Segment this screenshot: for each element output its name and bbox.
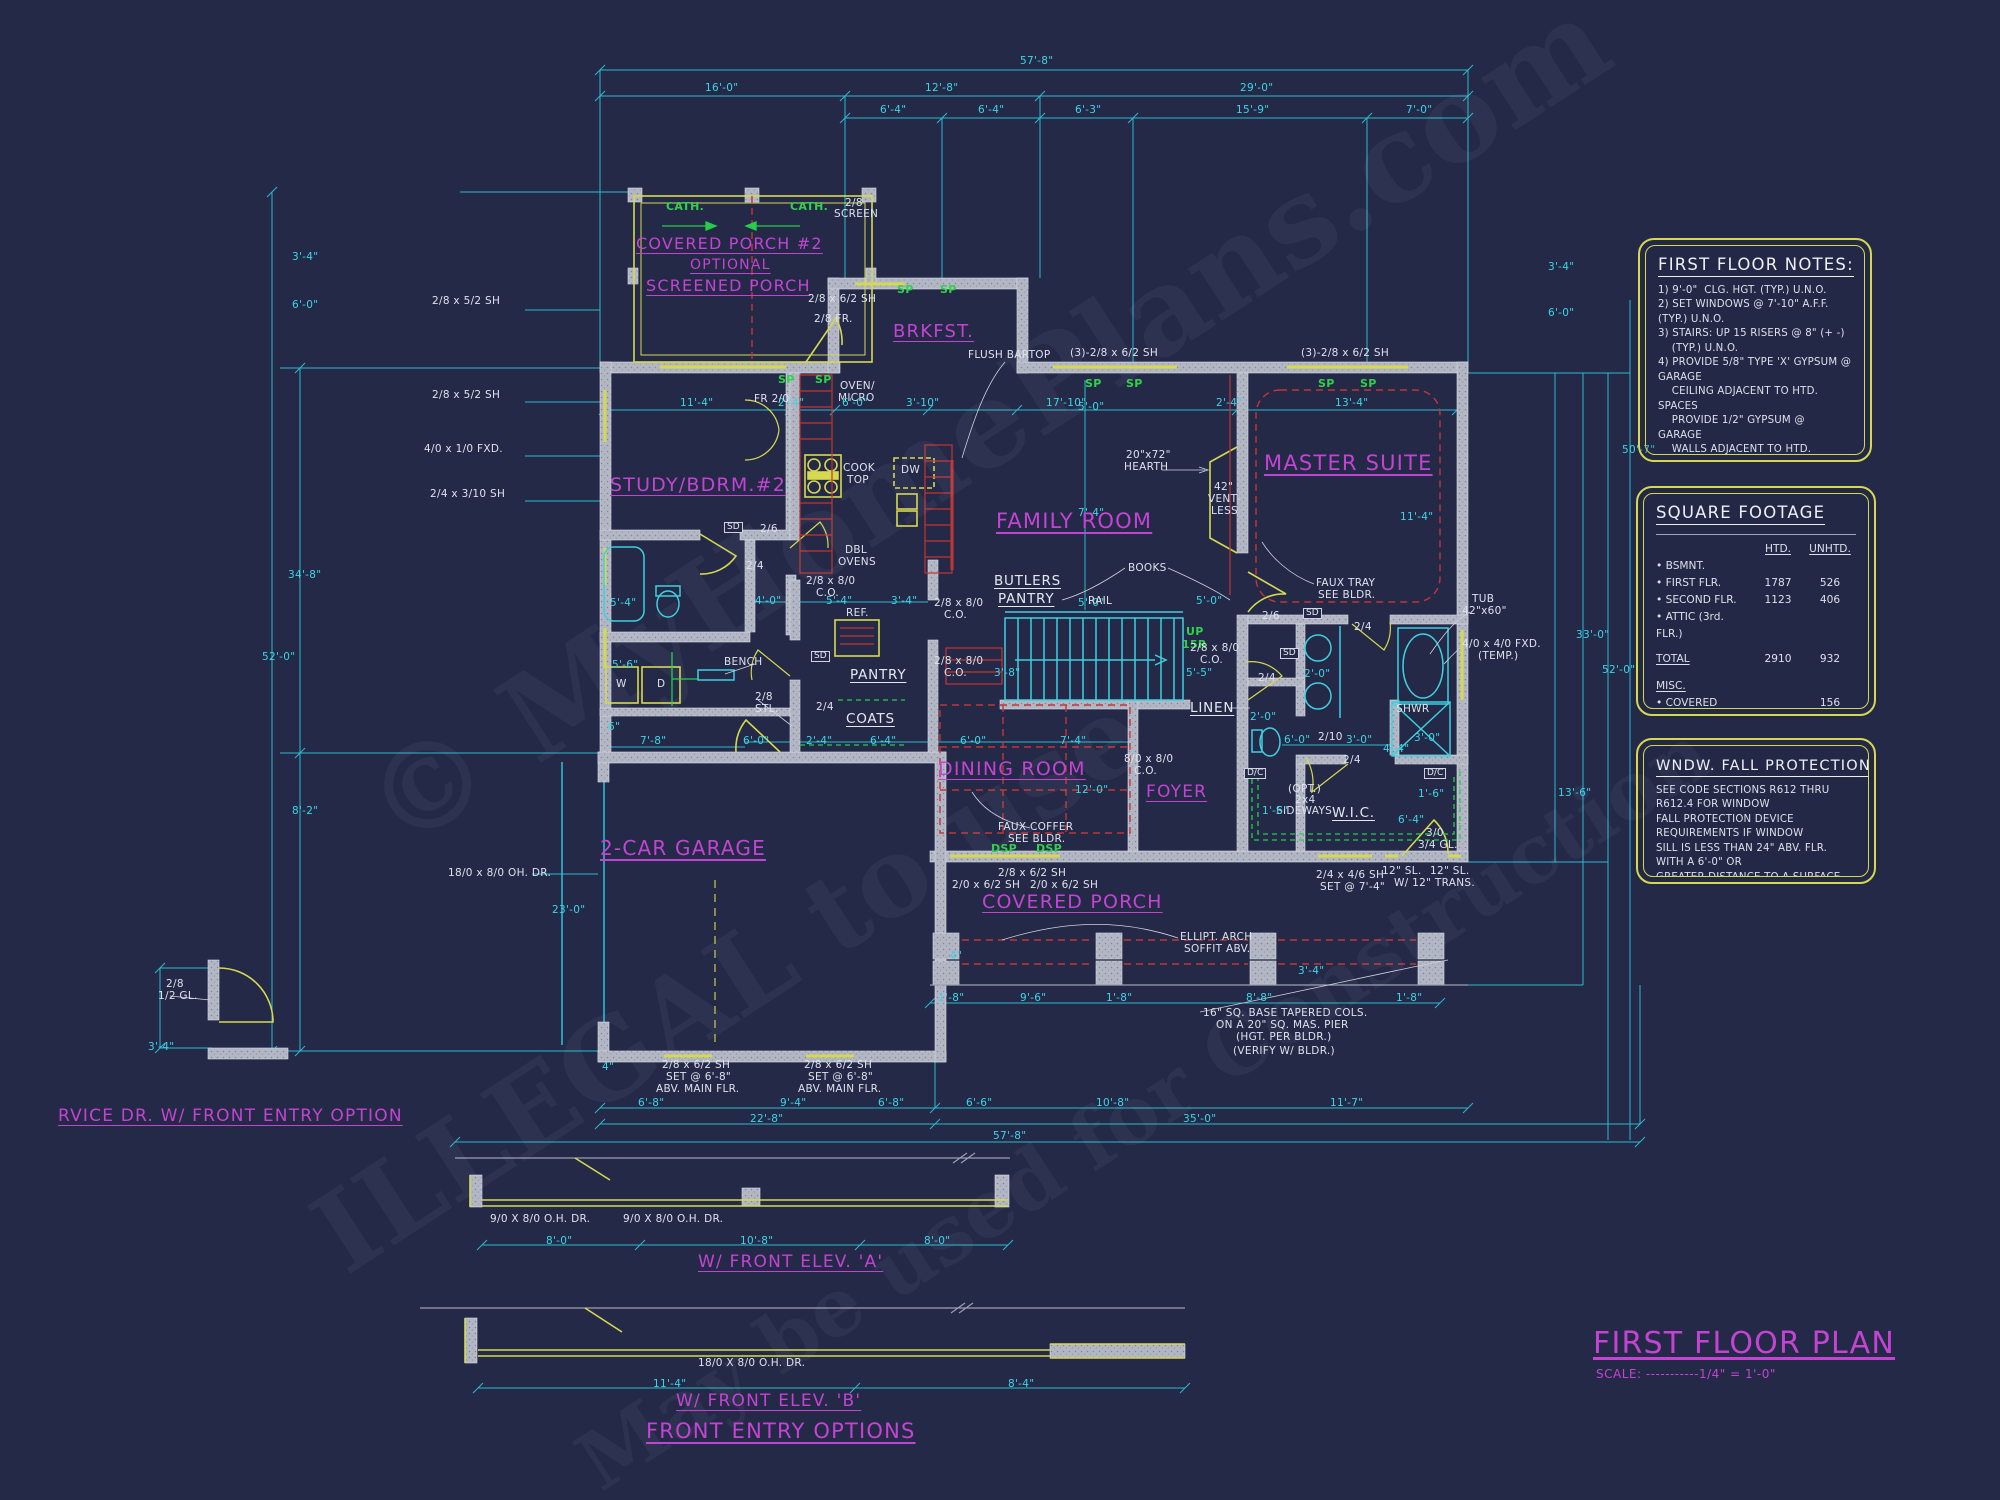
- plan-label-6-4: 6'-4": [880, 105, 906, 116]
- plan-label-soffit-abv: SOFFIT ABV.: [1184, 944, 1250, 955]
- note-line: 4) PROVIDE 5/8" TYPE 'X' GYPSUM @ GARAGE: [1658, 356, 1852, 385]
- plan-label-2-8-fr: 2/8 FR.: [814, 314, 853, 325]
- plan-label-6-3: 6'-3": [1075, 105, 1101, 116]
- plan-label-cath: CATH.: [790, 201, 828, 213]
- room-dining: DINING ROOM: [938, 760, 1086, 780]
- vanity-sink-icon: [1305, 635, 1331, 661]
- square-footage-box: SQUARE FOOTAGE HTD. UNHTD. • BSMNT.• FIR…: [1636, 486, 1876, 716]
- plan-label-screen: SCREEN: [834, 209, 878, 220]
- plan-label-2-4-x-4-6-sh: 2/4 x 4/6 SH: [1316, 870, 1384, 881]
- plan-label-optional: OPTIONAL: [690, 258, 771, 273]
- plan-label-abv-main-flr: ABV. MAIN FLR.: [798, 1084, 881, 1095]
- note-line: SILL IS LESS THAN 24" ABV. FLR. WITH A 6…: [1656, 842, 1856, 871]
- plan-label-ref: REF.: [846, 608, 869, 619]
- plan-label-w: W: [616, 679, 627, 690]
- plan-label-6-8: 6'-8": [638, 1098, 664, 1109]
- plan-label-2-10: 2/10: [1318, 732, 1343, 743]
- plan-label-sd: SD: [724, 522, 743, 533]
- vanity-sink-icon: [1305, 683, 1331, 709]
- plan-label-4: 4": [602, 1062, 614, 1073]
- plan-label-2-8: 2/8: [755, 692, 773, 703]
- plan-label-1-2-gl: 1/2 GL.: [158, 991, 198, 1002]
- note-line: 3) STAIRS: UP 15 RISERS @ 8" (+ -): [1658, 327, 1852, 341]
- plan-label-d-c: D/C: [1244, 768, 1266, 779]
- square-footage-total-row: TOTAL 2910 932: [1656, 651, 1856, 668]
- window-fall-notes-heading: WNDW. FALL PROTECTION NOTES:: [1656, 758, 1869, 777]
- plan-label-57-8: 57'-8": [1020, 56, 1053, 67]
- plan-label-42-x60: 42"x60": [1462, 606, 1507, 617]
- plan-label-18-0-x-8-0-o-h-dr: 18/0 X 8/0 O.H. DR.: [698, 1358, 805, 1369]
- plan-label-d-c: D/C: [1424, 768, 1446, 779]
- room-wic: W.I.C.: [1332, 806, 1375, 820]
- service-door-icon: [219, 968, 273, 1022]
- note-line: 1) 9'-0" CLG. HGT. (TYP.) U.N.O.: [1658, 284, 1852, 298]
- plan-label-2-8-x-6-2-sh: 2/8 x 6/2 SH: [804, 1060, 872, 1071]
- plan-label-9-6: 9'-6": [1020, 993, 1046, 1004]
- plan-label-set-6-8: SET @ 6'-8": [666, 1072, 731, 1083]
- plan-label-3-4: 3'-4": [891, 596, 917, 607]
- plan-label-2-8-x-6-2-sh: 2/8 x 6/2 SH: [998, 868, 1066, 879]
- plan-label-sp: SP: [1318, 378, 1335, 390]
- plan-label-16-0: 16'-0": [705, 83, 738, 94]
- plan-label-2-6: 2/6: [760, 524, 778, 535]
- plan-label-2-0: 2'-0": [1250, 712, 1276, 723]
- plan-label-6-0: 6'-0": [1548, 308, 1574, 319]
- plan-label-6-0: 6'-0": [743, 736, 769, 747]
- plan-label-3-10: 3'-10": [906, 398, 939, 409]
- plan-label-4-0: 4'-0": [755, 596, 781, 607]
- label-front-elev-b: W/ FRONT ELEV. 'B': [676, 1393, 861, 1411]
- plan-label-faux-coffer: FAUX COFFER: [998, 822, 1073, 833]
- plan-label-2-4: 2/4: [1343, 755, 1361, 766]
- plan-label-3-4: 3'-4": [1548, 262, 1574, 273]
- plan-label-7-8: 7'-8": [640, 736, 666, 747]
- plan-label-2-4: 2/4: [746, 561, 764, 572]
- square-footage-row: • SECOND FLR.1123406: [1656, 592, 1856, 609]
- plan-label-3-2-8-x-6-2-sh: (3)-2/8 x 6/2 SH: [1070, 348, 1158, 359]
- plan-label-12-0: 12'-0": [1075, 785, 1108, 796]
- plan-label-5-0: 5'-0": [1078, 402, 1104, 413]
- room-covered-porch: COVERED PORCH: [982, 893, 1163, 913]
- plan-label-2-8: 2/8: [166, 979, 184, 990]
- plan-label-sd: SD: [1280, 648, 1299, 659]
- plan-label-3-4: 3'-4": [1298, 966, 1324, 977]
- plan-label-42: 42": [1214, 482, 1233, 493]
- plan-label-sd: SD: [1303, 608, 1322, 619]
- plan-label-16-sq-base-tapered-cols: 16" SQ. BASE TAPERED COLS.: [1203, 1008, 1368, 1019]
- plan-label-13-6: 13'-6": [1558, 788, 1591, 799]
- blueprint-sheet: © MyHomePlans.comILLEGAL to useMay be us…: [0, 0, 2000, 1500]
- plan-label-on-a-20-sq-mas-pier: ON A 20" SQ. MAS. PIER: [1216, 1020, 1349, 1031]
- plan-label-stl: STL.: [755, 704, 778, 715]
- plan-label-1-6: 1'-6": [1418, 789, 1444, 800]
- note-line: 2) SET WINDOWS @ 7'-10" A.F.F. (TYP.) U.…: [1658, 298, 1852, 327]
- plan-label-2-4: 2'-4": [806, 736, 832, 747]
- plan-label-3-4-gl: 3/4 GL.: [1418, 840, 1458, 851]
- plan-label-6-0: 6'-0": [842, 398, 868, 409]
- plan-label-4-0-x-1-0-fxd: 4/0 x 1/0 FXD.: [424, 444, 503, 455]
- note-line: SEE CODE SECTIONS R612 THRU R612.4 FOR W…: [1656, 784, 1856, 813]
- plan-label-35-0: 35'-0": [1183, 1114, 1216, 1125]
- plan-label-c-o: C.O.: [944, 610, 967, 621]
- plan-label-9-0-x-8-0-o-h-dr: 9/0 X 8/0 O.H. DR.: [623, 1214, 723, 1225]
- plan-label-d: D: [657, 679, 665, 690]
- plan-label-12-sl: 12" SL.: [1430, 866, 1469, 877]
- plan-label-butlers: BUTLERS: [994, 574, 1061, 588]
- plan-label-10-8: 10'-8": [740, 1236, 773, 1247]
- note-line: CEILING ADJACENT TO HTD. SPACES: [1658, 385, 1852, 414]
- plan-label-5-4: 5'-4": [826, 596, 852, 607]
- square-footage-header-row: HTD. UNHTD.: [1656, 541, 1856, 558]
- plan-label-sp: SP: [778, 374, 795, 386]
- plan-label-12-sl: 12" SL.: [1382, 866, 1421, 877]
- note-line: GREATER DISTANCE TO A SURFACE OUTSIDE AN…: [1656, 871, 1856, 877]
- plan-label-abv-main-flr: ABV. MAIN FLR.: [656, 1084, 739, 1095]
- plan-label-22-8: 22'-8": [750, 1114, 783, 1125]
- square-footage-row: • FIRST FLR.1787526: [1656, 575, 1856, 592]
- plan-label-3-4: 3'-4": [292, 252, 318, 263]
- plan-label-2-8-x-6-2-sh: 2/8 x 6/2 SH: [808, 294, 876, 305]
- plan-label-hgt-per-bldr: (HGT. PER BLDR.): [1236, 1032, 1332, 1043]
- plan-label-6: 6": [608, 722, 620, 733]
- plan-label-6-0: 6'-0": [292, 300, 318, 311]
- plan-label-cook: COOK: [843, 463, 875, 474]
- plan-label-sp: SP: [897, 284, 914, 296]
- plan-label-w-12-trans: W/ 12" TRANS.: [1394, 878, 1475, 889]
- plan-label-less: LESS: [1211, 506, 1238, 517]
- plan-label-pantry: PANTRY: [850, 668, 906, 682]
- plan-label-up: UP: [1186, 626, 1204, 638]
- square-footage-row: • BSMNT.: [1656, 558, 1856, 575]
- plan-label-8-0: 8'-0": [924, 1236, 950, 1247]
- plan-label-2-8-x-6-2-sh: 2/8 x 6/2 SH: [662, 1060, 730, 1071]
- plan-label-12-8: 12'-8": [925, 83, 958, 94]
- plan-label-c-o: C.O.: [1134, 766, 1157, 777]
- plan-label-sp: SP: [815, 374, 832, 386]
- note-line: (TYP.) U.N.O.: [1658, 342, 1852, 356]
- plan-label-8-0: 8'-0": [546, 1236, 572, 1247]
- label-front-elev-a: W/ FRONT ELEV. 'A': [698, 1254, 883, 1272]
- room-family-room: FAMILY ROOM: [996, 510, 1152, 532]
- plan-label-11-4: 11'-4": [680, 398, 713, 409]
- plan-label-8-0-x-8-0: 8/0 x 8/0: [1124, 754, 1173, 765]
- wc-toilet-icon: [1260, 728, 1280, 756]
- plan-label-5-5: 5'-5": [1186, 668, 1212, 679]
- plan-label-3-4: 3'-4": [148, 1042, 174, 1053]
- plan-label-7-0: 7'-0": [1406, 105, 1432, 116]
- plan-label-7-4: 7'-4": [1060, 736, 1086, 747]
- plan-label-4-4: 4'-4": [1383, 744, 1409, 755]
- plan-label-11-4: 11'-4": [653, 1379, 686, 1390]
- plan-label-sp: SP: [1126, 378, 1143, 390]
- plan-label-57-8: 57'-8": [993, 1131, 1026, 1142]
- plan-label-10-8: 10'-8": [1096, 1098, 1129, 1109]
- plan-label-2-0: 2'-0": [1304, 669, 1330, 680]
- plan-label-34-8: 34'-8": [288, 570, 321, 581]
- note-line: WALLS ADJACENT TO HTD. SPACES: [1658, 443, 1852, 455]
- label-front-entry-options: FRONT ENTRY OPTIONS: [646, 1420, 916, 1442]
- room-garage: 2-CAR GARAGE: [600, 838, 766, 859]
- square-footage-misc-heading: MISC.: [1656, 678, 1856, 695]
- room-screened-porch: SCREENED PORCH: [646, 278, 811, 295]
- plan-label-6-0: 6'-0": [1284, 735, 1310, 746]
- first-floor-notes-box: FIRST FLOOR NOTES: 1) 9'-0" CLG. HGT. (T…: [1638, 238, 1872, 462]
- plan-label-2-4: 2/4: [816, 702, 834, 713]
- plan-label-6-4: 6'-4": [1398, 815, 1424, 826]
- plan-label-9-0-x-8-0-o-h-dr: 9/0 X 8/0 O.H. DR.: [490, 1214, 590, 1225]
- plan-label-pantry: PANTRY: [998, 592, 1054, 606]
- plan-label-1-8: 1'-8": [1396, 993, 1422, 1004]
- plan-label-2-8-x-5-2-sh: 2/8 x 5/2 SH: [432, 390, 500, 401]
- plan-label-rail: RAIL: [1088, 596, 1112, 607]
- plan-label-2-6: 2/6: [1262, 611, 1280, 622]
- plan-label-verify-w-bldr: (VERIFY W/ BLDR.): [1233, 1046, 1335, 1057]
- sheet-title: FIRST FLOOR PLAN: [1593, 1328, 1895, 1360]
- plan-label-8-8: 8'-8": [1246, 993, 1272, 1004]
- plan-label-6-6: 6'-6": [966, 1098, 992, 1109]
- plan-label-flush-bartop: FLUSH BARTOP: [968, 350, 1050, 361]
- plan-label-c-o: C.O.: [944, 668, 967, 679]
- note-line: FALL PROTECTION DEVICE REQUIREMENTS IF W…: [1656, 813, 1856, 842]
- plan-label-13-4: 13'-4": [1335, 398, 1368, 409]
- plan-label-6-4: 6'-4": [870, 736, 896, 747]
- square-footage-heading: SQUARE FOOTAGE: [1656, 503, 1825, 525]
- first-floor-notes-heading: FIRST FLOOR NOTES:: [1658, 255, 1854, 277]
- plan-label-temp: (TEMP.): [1478, 651, 1518, 662]
- plan-label-2-8-x-8-0: 2/8 x 8/0: [806, 576, 855, 587]
- plan-label-2-0-x-6-2-sh: 2/0 x 6/2 SH: [952, 880, 1020, 891]
- plan-label-3-0: 3/0: [1426, 828, 1444, 839]
- plan-label-9-4: 9'-4": [780, 1098, 806, 1109]
- plan-label-tub: TUB: [1472, 594, 1494, 605]
- plan-label-2-8-x-8-0: 2/8 x 8/0: [934, 656, 983, 667]
- plan-label-8-2: 8'-2": [292, 806, 318, 817]
- plan-label-11-7: 11'-7": [1330, 1098, 1363, 1109]
- plan-label-2-4: 2'-4": [1216, 398, 1242, 409]
- plan-label-11-4: 11'-4": [1400, 512, 1433, 523]
- plan-label-faux-tray: FAUX TRAY: [1316, 578, 1375, 589]
- plan-label-23-0: 23'-0": [552, 905, 585, 916]
- plan-label-sp: SP: [940, 284, 957, 296]
- plan-label-cath: CATH.: [666, 201, 704, 213]
- plan-label-coats: COATS: [846, 712, 895, 726]
- plan-label-sp: SP: [1360, 378, 1377, 390]
- plan-label-20-x72: 20"x72": [1126, 450, 1171, 461]
- plan-label-29-0: 29'-0": [1240, 83, 1273, 94]
- plan-label-1-6: 1'-6": [1262, 806, 1288, 817]
- plan-label-1-8: 1'-8": [1106, 993, 1132, 1004]
- plan-label-6-0: 6'-0": [960, 736, 986, 747]
- plan-label-sd: SD: [811, 651, 830, 662]
- plan-label-3-0: 3'-0": [1414, 733, 1440, 744]
- plan-label-33-0: 33'-0": [1576, 630, 1609, 641]
- room-brkfst: BRKFST.: [893, 323, 974, 342]
- plan-label-52-0: 52'-0": [1602, 665, 1635, 676]
- plan-label-5-4: 5'-4": [610, 598, 636, 609]
- plan-label-2-4: 2/4: [1354, 622, 1372, 633]
- plan-label-5-0: 5'-0": [1196, 596, 1222, 607]
- plan-label-set-7-4: SET @ 7'-4": [1320, 882, 1385, 893]
- square-footage-row: • ATTIC (3rd. FLR.): [1656, 609, 1856, 643]
- plan-label-5-6: 5'-6": [612, 660, 638, 671]
- master-faux-tray: [1256, 390, 1440, 602]
- room-study-bdrm2: STUDY/BDRM.#2: [610, 476, 786, 496]
- plan-label-see-bldr: SEE BLDR.: [1318, 590, 1375, 601]
- plan-label-2-8-x-8-0: 2/8 x 8/0: [1190, 643, 1239, 654]
- plan-label-3-0: 3'-0": [1346, 735, 1372, 746]
- plan-label-ellipt-arch: ELLIPT. ARCH: [1180, 932, 1252, 943]
- plan-label-set-6-8: SET @ 6'-8": [808, 1072, 873, 1083]
- window-fall-notes-box: WNDW. FALL PROTECTION NOTES: SEE CODE SE…: [1636, 738, 1876, 884]
- refrigerator-icon: [835, 620, 879, 656]
- sheet-scale: SCALE: -----------1/4" = 1'-0": [1596, 1368, 1776, 1381]
- plan-label-hearth: HEARTH: [1124, 462, 1168, 473]
- plan-label-52-0: 52'-0": [262, 652, 295, 663]
- plan-label-sp: SP: [1085, 378, 1102, 390]
- room-foyer: FOYER: [1146, 784, 1207, 802]
- plan-label-linen: LINEN: [1190, 701, 1234, 715]
- plan-label-4: 4": [950, 951, 962, 962]
- plan-label-vent: VENT-: [1208, 494, 1240, 505]
- plan-label-2-4-x-3-10-sh: 2/4 x 3/10 SH: [430, 489, 505, 500]
- plan-label-shwr: SHWR: [1396, 704, 1429, 715]
- plan-label-ovens: OVENS: [838, 557, 876, 568]
- plan-label-2-8-x-8-0: 2/8 x 8/0: [934, 598, 983, 609]
- plan-label-oven: OVEN/: [840, 381, 875, 392]
- plan-label-top: TOP: [847, 475, 869, 486]
- plan-label-4-0-x-4-0-fxd: 4/0 x 4/0 FXD.: [1462, 639, 1541, 650]
- plan-label-dbl: DBL: [845, 545, 867, 556]
- plan-label-6-4: 6'-4": [978, 105, 1004, 116]
- plan-label-2-4: 2'-4": [778, 398, 804, 409]
- plan-label-2-4: 2/4: [1258, 673, 1276, 684]
- plan-label-8-4: 8'-4": [1008, 1379, 1034, 1390]
- plan-label-2-0-x-6-2-sh: 2/0 x 6/2 SH: [1030, 880, 1098, 891]
- plan-label-bench: BENCH: [724, 657, 762, 668]
- label-service-dr-option: RVICE DR. W/ FRONT ENTRY OPTION: [58, 1108, 403, 1126]
- room-master-suite: MASTER SUITE: [1264, 452, 1433, 474]
- plan-label-2-8-x-5-2-sh: 2/8 x 5/2 SH: [432, 296, 500, 307]
- square-footage-row: • COVERED PORCH156: [1656, 695, 1856, 710]
- plan-label-books: BOOKS: [1128, 563, 1167, 574]
- plan-label-c-o: C.O.: [1200, 655, 1223, 666]
- plan-label-3-2-8-x-6-2-sh: (3)-2/8 x 6/2 SH: [1301, 348, 1389, 359]
- room-covered-porch-2: COVERED PORCH #2: [636, 236, 823, 253]
- plan-label-15-9: 15'-9": [1236, 105, 1269, 116]
- plan-label-1-8: 1'-8": [938, 993, 964, 1004]
- garage-door-label: 18/0 x 8/0 OH. DR.: [448, 868, 551, 879]
- plan-label-dsp: DSP: [991, 843, 1017, 855]
- plan-label-dw: DW: [901, 465, 920, 476]
- plan-label-6-8: 6'-8": [878, 1098, 904, 1109]
- plan-label-dsp: DSP: [1036, 843, 1062, 855]
- plan-label-3-8: 3'-8": [994, 668, 1020, 679]
- note-line: PROVIDE 1/2" GYPSUM @ GARAGE: [1658, 414, 1852, 443]
